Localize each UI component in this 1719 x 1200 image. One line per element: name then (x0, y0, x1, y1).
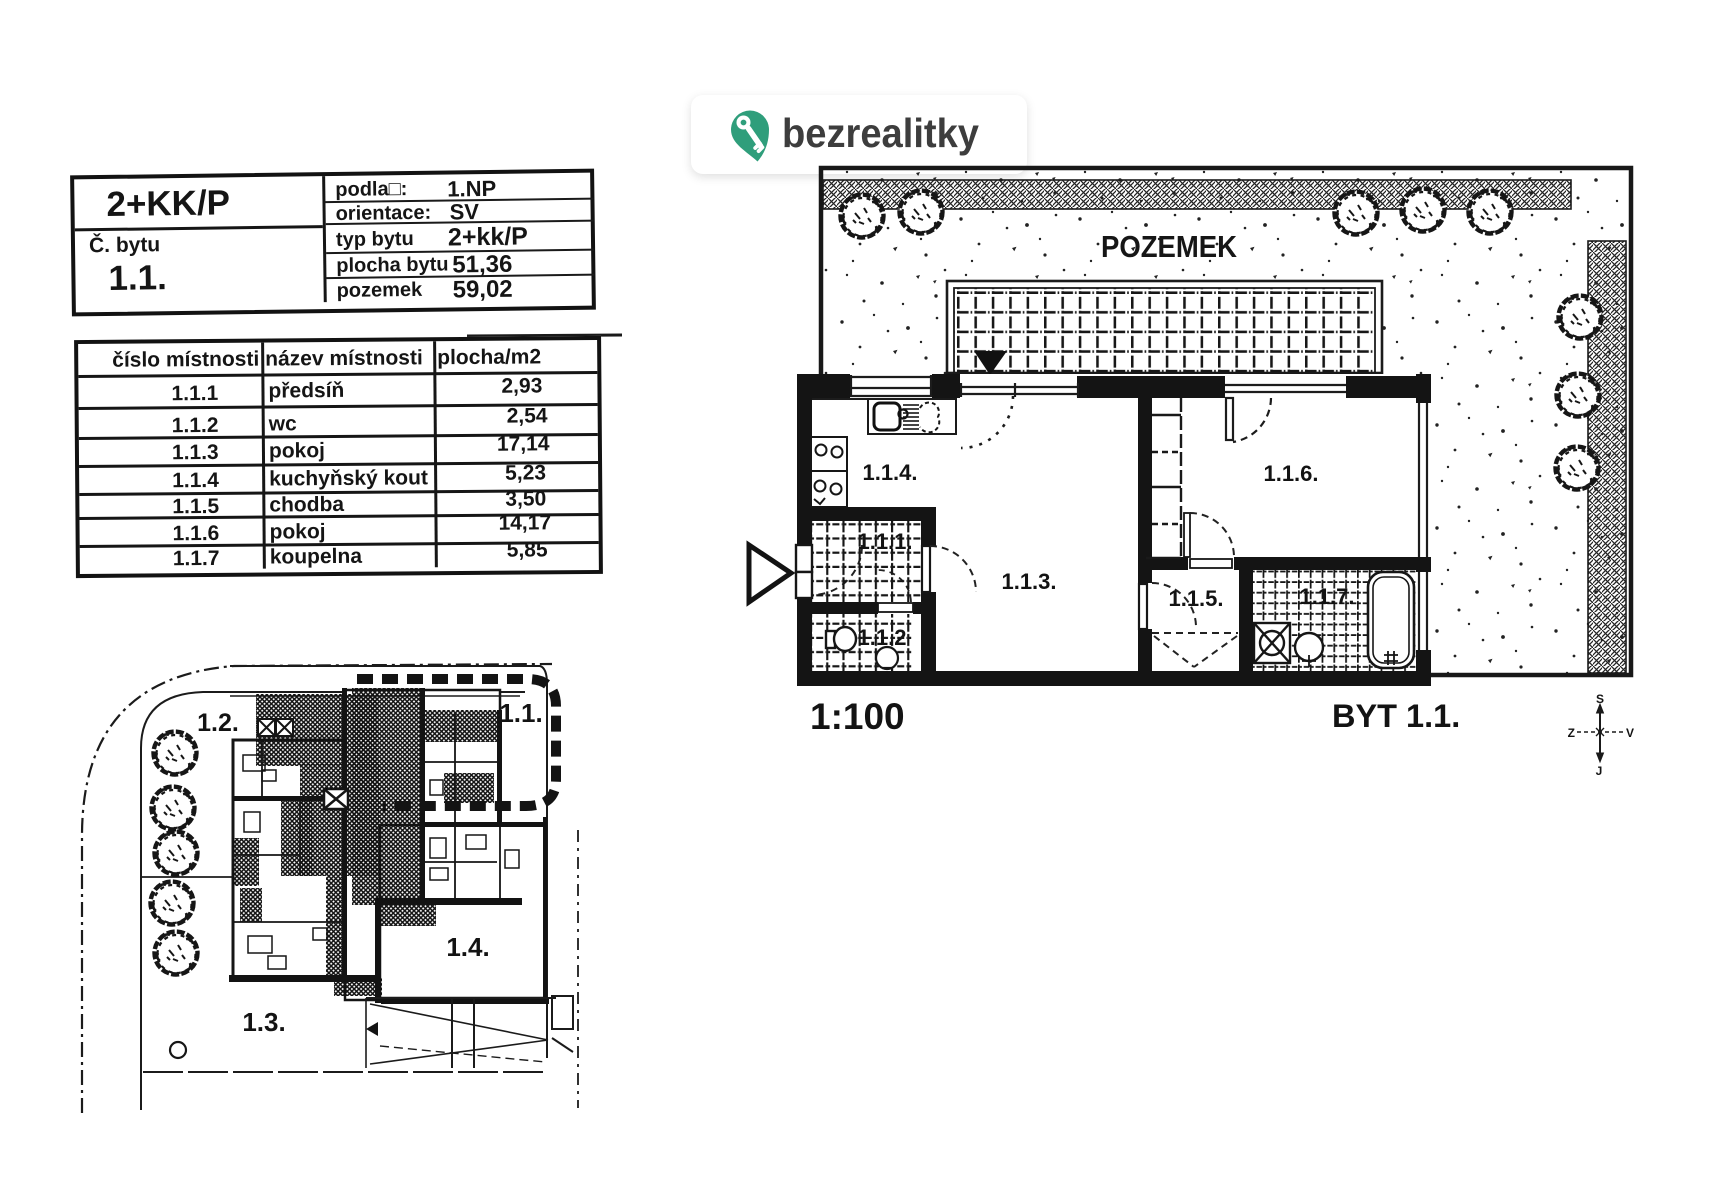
svg-text:POZEMEK: POZEMEK (1101, 229, 1238, 264)
svg-text:1.1.5.: 1.1.5. (1168, 586, 1223, 611)
svg-text:1:100: 1:100 (810, 696, 905, 737)
svg-text:1.1.6.: 1.1.6. (1263, 461, 1318, 486)
svg-text:1.1.1.: 1.1.1. (857, 529, 912, 554)
svg-text:Z: Z (1568, 726, 1575, 740)
svg-text:V: V (1626, 726, 1634, 740)
svg-text:1.1.: 1.1. (499, 698, 542, 728)
svg-text:1.4.: 1.4. (446, 932, 489, 962)
svg-text:1.1.4.: 1.1.4. (862, 460, 917, 485)
svg-text:1.2.: 1.2. (197, 709, 239, 737)
svg-text:1.3.: 1.3. (242, 1007, 285, 1037)
svg-text:1.1.7.: 1.1.7. (1299, 584, 1354, 609)
svg-text:S: S (1596, 692, 1604, 706)
svg-text:J: J (1596, 764, 1603, 778)
svg-text:1.1.3.: 1.1.3. (1001, 569, 1056, 594)
svg-text:BYT 1.1.: BYT 1.1. (1332, 698, 1460, 734)
svg-text:1.1.2: 1.1.2 (858, 625, 907, 650)
